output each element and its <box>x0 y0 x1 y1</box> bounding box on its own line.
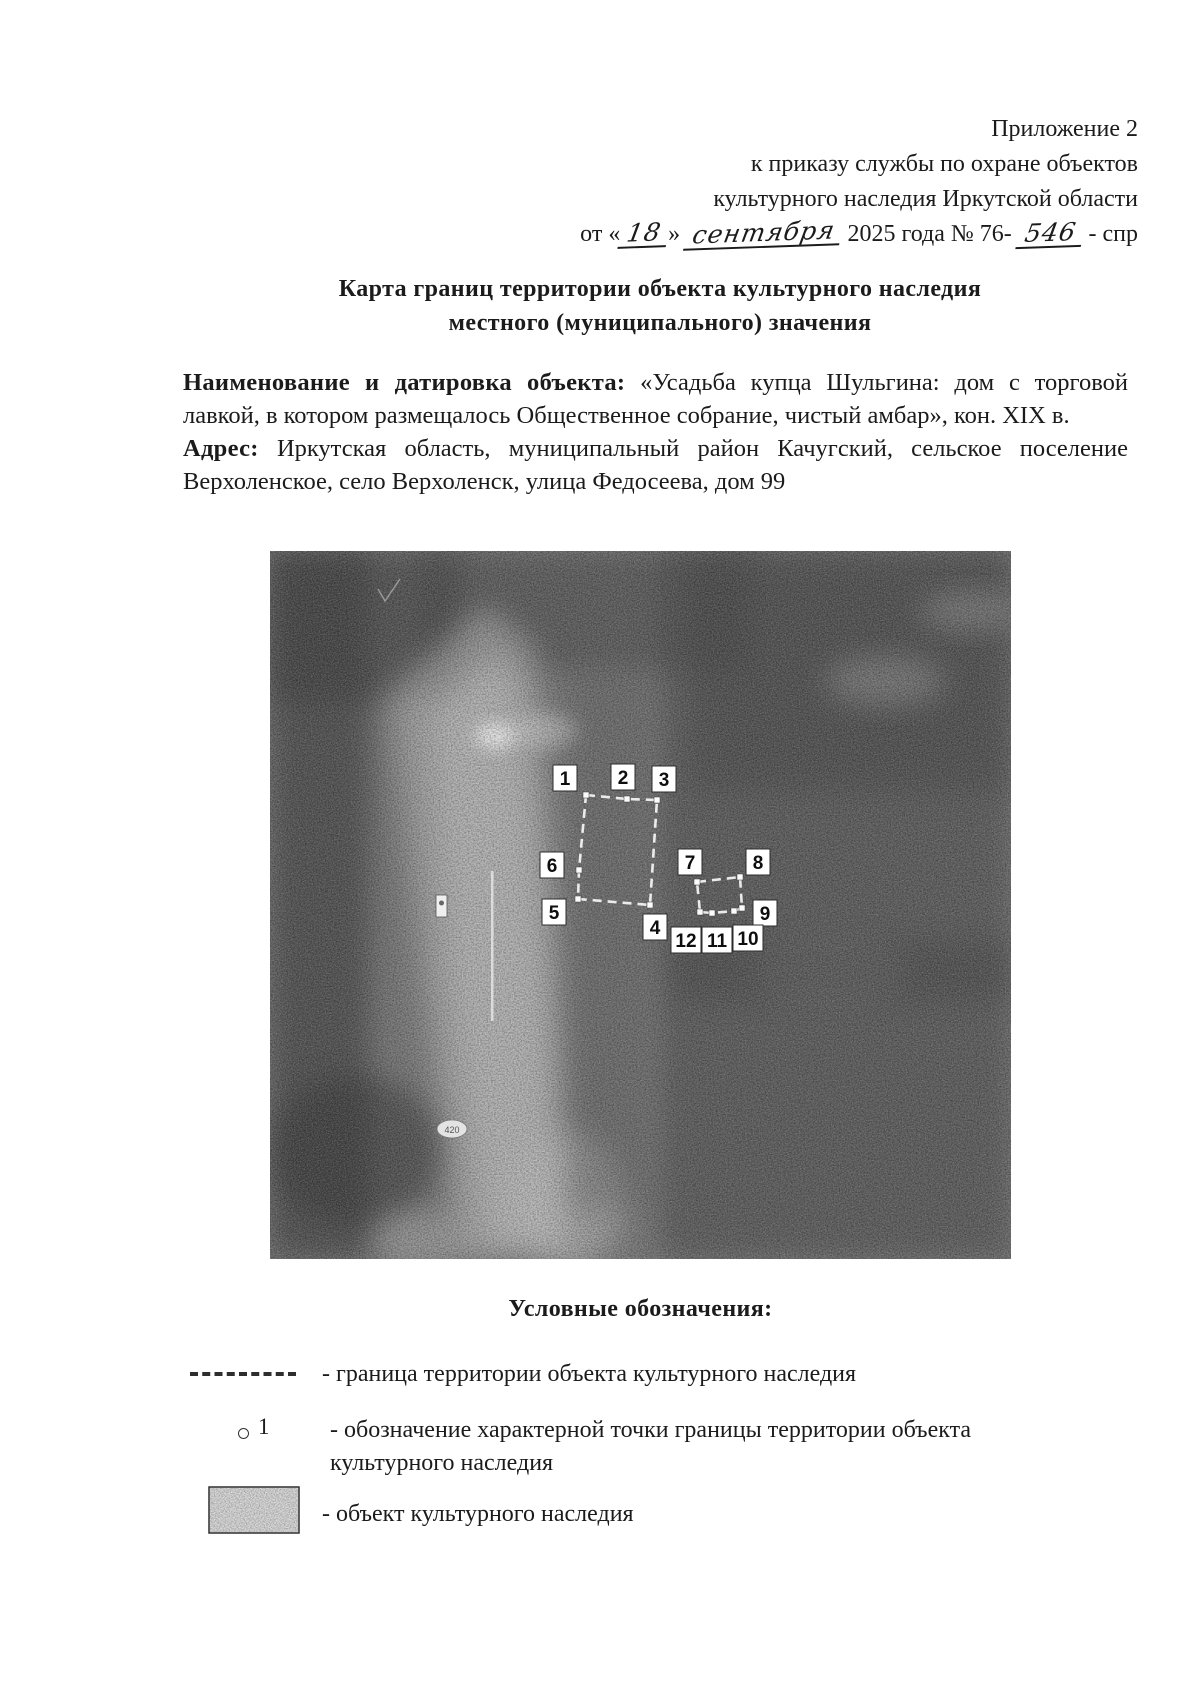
handwritten-day: 18 <box>618 219 671 249</box>
order-reference-line1: к приказу службы по охране объектов <box>580 147 1138 182</box>
address-paragraph: Адрес: Иркутская область, муниципальный … <box>183 432 1128 498</box>
svg-text:5: 5 <box>549 903 560 924</box>
document-title: Карта границ территории объекта культурн… <box>185 272 1135 340</box>
legend-heritage-object-symbol <box>208 1486 300 1534</box>
svg-text:1: 1 <box>560 769 571 790</box>
legend-boundary-line-text: - граница территории объекта культурного… <box>322 1358 1042 1391</box>
svg-text:2: 2 <box>618 768 629 789</box>
small-signpost-mark <box>439 901 444 906</box>
date-prefix: от « <box>580 221 620 247</box>
document-title-line1: Карта границ территории объекта культурн… <box>185 272 1135 306</box>
map-point-marker-8: 8 <box>746 849 770 875</box>
map-point-marker-7: 7 <box>678 849 702 875</box>
legend-point-text: - обозначение характерной точки границы … <box>330 1414 1030 1480</box>
map-point-marker-9: 9 <box>753 900 777 926</box>
appendix-label: Приложение 2 <box>580 112 1138 147</box>
object-name-paragraph: Наименование и датировка объекта: «Усадь… <box>183 366 1128 432</box>
legend-point-symbol-number: 1 <box>258 1414 270 1440</box>
date-suffix: - спр <box>1089 221 1139 247</box>
svg-text:9: 9 <box>760 904 771 925</box>
address-label: Адрес: <box>183 435 259 462</box>
legend-boundary-line-symbol <box>190 1372 296 1376</box>
map-point-marker-2: 2 <box>611 764 635 790</box>
site-map: 420 1 2 3 4 5 <box>270 551 1011 1259</box>
order-reference-line2: культурного наследия Иркутской области <box>580 182 1138 217</box>
map-point-marker-4: 4 <box>643 914 667 940</box>
appendix-header: Приложение 2 к приказу службы по охране … <box>580 112 1138 252</box>
date-middle: 2025 года № 76- <box>847 221 1011 247</box>
svg-text:8: 8 <box>753 853 764 874</box>
svg-text:7: 7 <box>685 853 696 874</box>
map-point-marker-10: 10 <box>733 925 763 951</box>
svg-text:6: 6 <box>547 856 558 877</box>
date-infix: » <box>668 221 680 247</box>
document-body: Наименование и датировка объекта: «Усадь… <box>183 366 1128 498</box>
svg-text:11: 11 <box>707 931 728 952</box>
map-point-marker-5: 5 <box>542 899 566 925</box>
svg-text:3: 3 <box>659 770 670 791</box>
handwritten-month: сентября <box>683 217 844 250</box>
map-point-marker-6: 6 <box>540 852 564 878</box>
road-sign-label: 420 <box>444 1125 459 1135</box>
legend-title: Условные обозначения: <box>270 1296 1011 1323</box>
object-name-label: Наименование и датировка объекта: <box>183 369 625 396</box>
svg-text:12: 12 <box>675 931 696 952</box>
svg-text:4: 4 <box>650 918 661 939</box>
svg-text:10: 10 <box>737 929 758 950</box>
map-point-marker-11: 11 <box>702 927 732 953</box>
document-title-line2: местного (муниципального) значения <box>185 306 1135 340</box>
legend-stipple-swatch <box>208 1486 300 1534</box>
fence-line <box>491 871 494 1021</box>
site-map-image: 420 1 2 3 4 5 <box>270 551 1011 1259</box>
document-page: Приложение 2 к приказу службы по охране … <box>0 0 1200 1697</box>
handwritten-order-number: 546 <box>1015 219 1085 249</box>
small-signpost <box>436 895 447 917</box>
legend-heritage-object-text: - объект культурного наследия <box>322 1498 1042 1531</box>
map-point-marker-3: 3 <box>652 766 676 792</box>
map-point-marker-1: 1 <box>553 765 577 791</box>
legend-point-symbol-icon <box>238 1428 249 1439</box>
order-date-line: от «18» сентября 2025 года № 76- 546 - с… <box>580 217 1138 252</box>
map-point-marker-12: 12 <box>671 927 701 953</box>
address-text: Иркутская область, муниципальный район К… <box>183 435 1128 495</box>
